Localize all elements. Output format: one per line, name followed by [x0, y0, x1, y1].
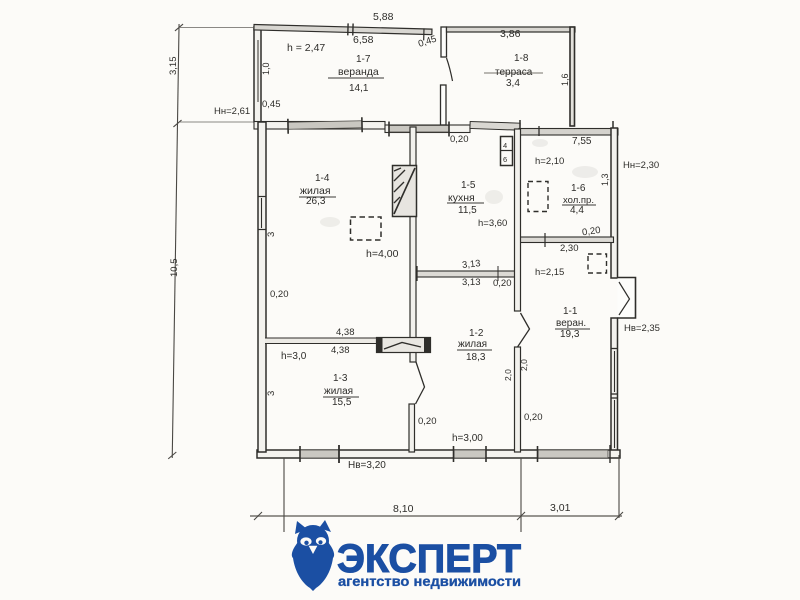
svg-text:0,20: 0,20 — [524, 412, 543, 423]
svg-text:1-8: 1-8 — [514, 53, 529, 64]
svg-text:h=3,0: h=3,0 — [281, 351, 307, 362]
svg-text:1,3: 1,3 — [600, 173, 610, 186]
svg-text:10,5: 10,5 — [169, 259, 180, 278]
svg-text:1-5: 1-5 — [461, 180, 476, 191]
svg-text:15,5: 15,5 — [332, 397, 352, 408]
svg-text:1-2: 1-2 — [469, 328, 484, 339]
svg-text:0,20: 0,20 — [270, 289, 289, 300]
svg-text:1-7: 1-7 — [356, 54, 371, 65]
svg-text:0,20: 0,20 — [450, 134, 469, 145]
svg-text:веран.: веран. — [556, 318, 586, 329]
svg-text:8,10: 8,10 — [393, 503, 414, 515]
svg-text:0,20: 0,20 — [581, 225, 601, 238]
svg-text:19,3: 19,3 — [560, 329, 580, 340]
svg-text:3,4: 3,4 — [506, 78, 520, 89]
svg-text:14,1: 14,1 — [349, 83, 369, 94]
svg-text:Нн=2,61: Нн=2,61 — [214, 106, 250, 117]
svg-text:2,0: 2,0 — [503, 369, 513, 381]
svg-text:3,01: 3,01 — [550, 502, 571, 514]
svg-text:2,30: 2,30 — [560, 243, 579, 254]
svg-text:3: 3 — [266, 232, 277, 237]
svg-text:0,45: 0,45 — [262, 99, 281, 110]
svg-text:3,86: 3,86 — [500, 28, 521, 40]
svg-text:1-1: 1-1 — [563, 306, 578, 317]
svg-text:0,20: 0,20 — [418, 416, 437, 427]
svg-text:1,6: 1,6 — [560, 73, 570, 86]
svg-text:h=4,00: h=4,00 — [366, 248, 399, 260]
svg-text:h=3,00: h=3,00 — [452, 433, 483, 444]
svg-text:4,38: 4,38 — [331, 345, 350, 356]
svg-text:веранда: веранда — [338, 66, 379, 78]
svg-text:h=3,60: h=3,60 — [478, 218, 507, 229]
svg-text:3,13: 3,13 — [462, 258, 482, 271]
svg-text:2,0: 2,0 — [519, 359, 529, 371]
svg-text:5,88: 5,88 — [373, 11, 394, 23]
svg-text:26,3: 26,3 — [306, 196, 326, 207]
svg-text:4: 4 — [503, 141, 507, 150]
svg-text:1,0: 1,0 — [261, 62, 271, 75]
svg-text:Нв=2,35: Нв=2,35 — [624, 323, 660, 334]
svg-text:7,55: 7,55 — [572, 136, 592, 147]
svg-text:1-6: 1-6 — [571, 183, 586, 194]
svg-text:3: 3 — [266, 391, 277, 396]
svg-text:4,38: 4,38 — [336, 327, 355, 338]
svg-text:жилая: жилая — [458, 339, 487, 350]
svg-text:0,45: 0,45 — [417, 34, 438, 50]
svg-text:1-3: 1-3 — [333, 373, 348, 384]
svg-text:h=2,15: h=2,15 — [535, 267, 564, 278]
svg-text:Нв=3,20: Нв=3,20 — [348, 460, 386, 471]
svg-text:18,3: 18,3 — [466, 352, 486, 363]
svg-text:6,58: 6,58 — [353, 34, 374, 46]
svg-text:3,13: 3,13 — [462, 277, 481, 288]
svg-text:терраса: терраса — [495, 67, 533, 78]
svg-text:агентство недвижимости: агентство недвижимости — [338, 574, 521, 589]
svg-text:1-4: 1-4 — [315, 173, 330, 184]
svg-text:Нн=2,30: Нн=2,30 — [623, 160, 659, 171]
svg-text:кухня: кухня — [448, 192, 475, 204]
svg-text:3,15: 3,15 — [168, 57, 179, 76]
svg-text:6: 6 — [503, 155, 507, 164]
svg-text:0,20: 0,20 — [493, 278, 512, 289]
svg-text:11,5: 11,5 — [458, 205, 477, 216]
svg-text:h=2,10: h=2,10 — [535, 156, 564, 167]
svg-text:h = 2,47: h = 2,47 — [287, 42, 325, 54]
svg-text:жилая: жилая — [324, 386, 353, 397]
svg-text:4,4: 4,4 — [570, 205, 584, 216]
